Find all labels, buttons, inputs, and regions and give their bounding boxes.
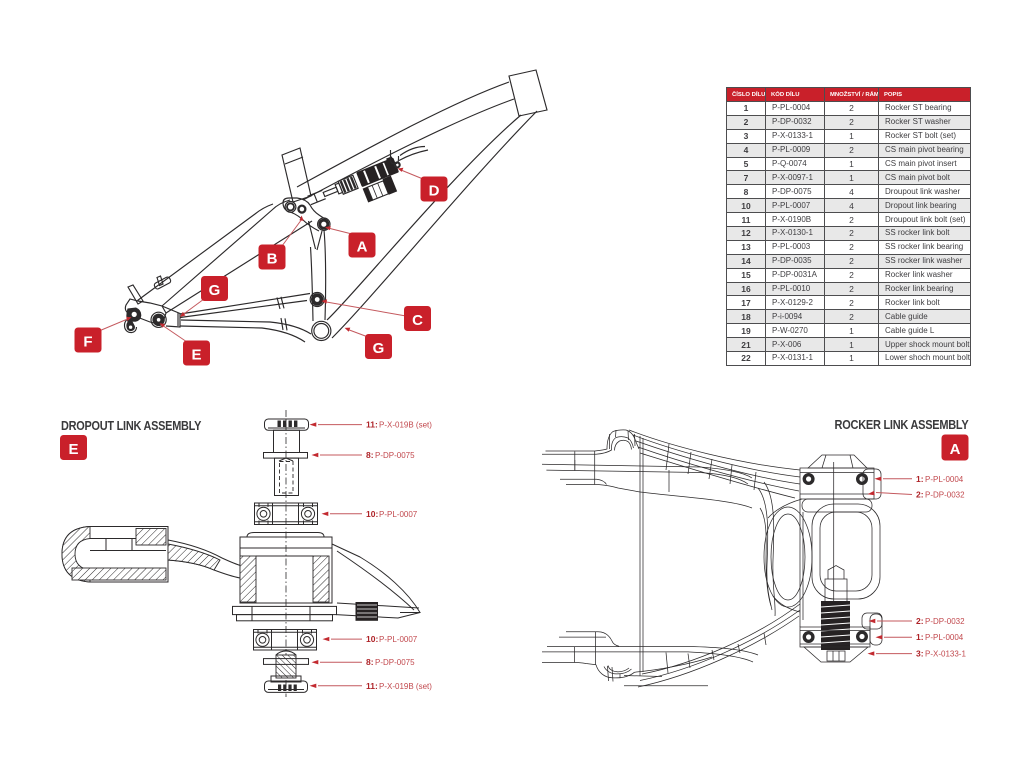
svg-text:11:: 11: [366, 420, 378, 430]
svg-text:P-PL-0004: P-PL-0004 [925, 475, 964, 484]
svg-text:1:: 1: [916, 474, 924, 484]
svg-text:B: B [267, 251, 278, 268]
svg-text:P-DP-0075: P-DP-0075 [375, 658, 415, 667]
svg-text:1:: 1: [916, 632, 924, 642]
svg-text:8:: 8: [366, 657, 374, 667]
svg-text:2:: 2: [916, 616, 924, 626]
svg-text:G: G [209, 282, 221, 299]
svg-text:10:: 10: [366, 634, 378, 644]
svg-text:D: D [429, 183, 440, 200]
svg-text:A: A [950, 441, 961, 458]
svg-text:E: E [191, 347, 201, 364]
svg-text:P-DP-0075: P-DP-0075 [375, 451, 415, 460]
svg-text:G: G [373, 340, 385, 357]
svg-text:A: A [357, 239, 368, 256]
svg-text:10:: 10: [366, 509, 378, 519]
svg-text:P-X-0133-1: P-X-0133-1 [925, 650, 966, 659]
svg-text:11:: 11: [366, 681, 378, 691]
svg-text:2:: 2: [916, 490, 924, 500]
svg-text:P-PL-0007: P-PL-0007 [379, 635, 418, 644]
svg-text:E: E [68, 441, 78, 458]
svg-text:P-DP-0032: P-DP-0032 [925, 617, 965, 626]
svg-text:P-X-019B (set): P-X-019B (set) [379, 682, 432, 691]
svg-text:F: F [83, 334, 92, 351]
svg-text:3:: 3: [916, 649, 924, 659]
svg-text:P-PL-0004: P-PL-0004 [925, 633, 964, 642]
svg-text:P-X-019B (set): P-X-019B (set) [379, 421, 432, 430]
svg-text:8:: 8: [366, 450, 374, 460]
svg-text:P-DP-0032: P-DP-0032 [925, 491, 965, 500]
svg-text:P-PL-0007: P-PL-0007 [379, 510, 418, 519]
svg-text:C: C [412, 312, 423, 329]
